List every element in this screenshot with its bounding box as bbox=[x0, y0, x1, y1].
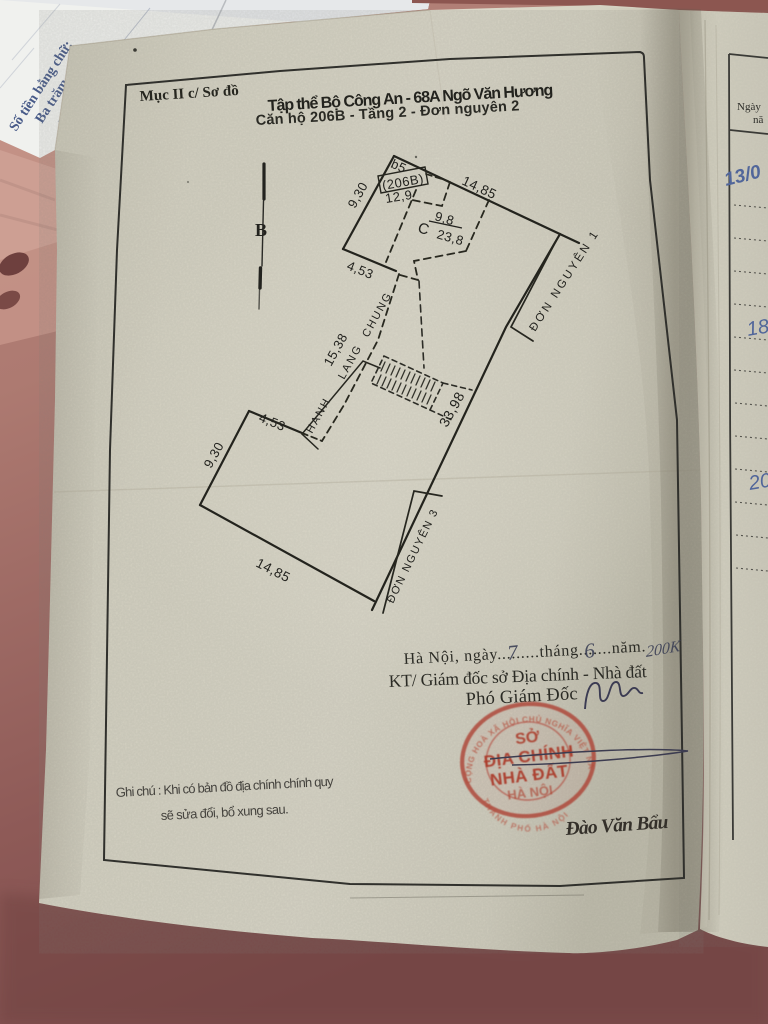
svg-text:18: 18 bbox=[745, 315, 768, 341]
svg-text:20: 20 bbox=[746, 469, 768, 495]
svg-text:B: B bbox=[255, 220, 267, 240]
svg-text:Ngày: Ngày bbox=[737, 101, 761, 113]
svg-text:nă: nă bbox=[753, 114, 764, 126]
